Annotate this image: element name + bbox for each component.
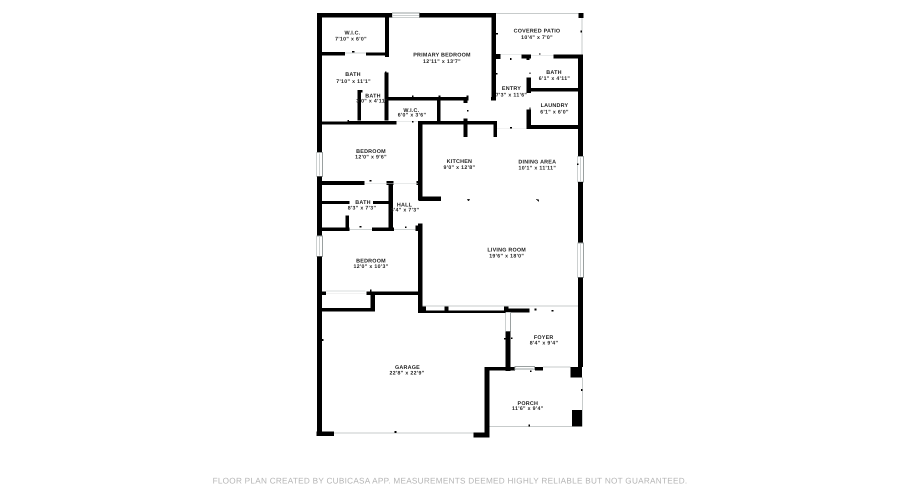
svg-text:7'3" x 11'6": 7'3" x 11'6" (496, 92, 528, 98)
svg-text:22'8" x 22'9": 22'8" x 22'9" (389, 371, 424, 377)
svg-text:7'10" x 11'1": 7'10" x 11'1" (336, 79, 371, 85)
svg-text:8'3" x 7'3": 8'3" x 7'3" (348, 205, 377, 211)
svg-text:BATH: BATH (345, 72, 360, 78)
svg-text:ENTRY: ENTRY (502, 86, 521, 92)
svg-text:LAUNDRY: LAUNDRY (541, 103, 569, 109)
svg-text:3'4" x 7'3": 3'4" x 7'3" (391, 208, 420, 214)
svg-text:10'4" x 7'0": 10'4" x 7'0" (521, 35, 553, 41)
svg-text:10'1" x 11'11": 10'1" x 11'11" (518, 165, 556, 171)
svg-text:W.I.C.: W.I.C. (345, 31, 361, 37)
svg-text:PRIMARY BEDROOM: PRIMARY BEDROOM (413, 53, 471, 59)
svg-text:11'6" x 9'4": 11'6" x 9'4" (512, 406, 544, 412)
svg-text:6'1" x 4'11": 6'1" x 4'11" (539, 76, 571, 82)
svg-text:COVERED PATIO: COVERED PATIO (514, 29, 561, 35)
svg-text:7'10" x 6'0": 7'10" x 6'0" (335, 37, 367, 43)
svg-text:19'6" x 18'0": 19'6" x 18'0" (489, 254, 524, 260)
svg-text:9'0" x 12'8": 9'0" x 12'8" (444, 165, 476, 171)
svg-text:8'4" x 9'4": 8'4" x 9'4" (530, 341, 559, 347)
svg-text:3'0" x 4'11": 3'0" x 4'11" (356, 99, 388, 105)
svg-text:12'0" x 10'3": 12'0" x 10'3" (353, 264, 388, 270)
svg-text:12'11" x 13'7": 12'11" x 13'7" (423, 59, 461, 65)
svg-text:6'0" x 3'6": 6'0" x 3'6" (398, 113, 427, 119)
svg-text:12'0" x 9'6": 12'0" x 9'6" (355, 155, 387, 161)
svg-text:FLOOR PLAN CREATED BY CUBICASA: FLOOR PLAN CREATED BY CUBICASA APP. MEAS… (213, 477, 688, 486)
svg-text:6'1" x 6'0": 6'1" x 6'0" (540, 110, 569, 116)
